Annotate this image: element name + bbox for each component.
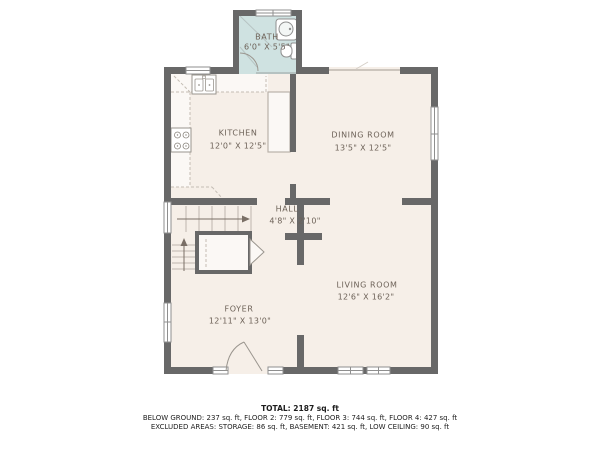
room-label-hall-dims: 4'8" X 2'10" — [269, 217, 320, 226]
stove-icon — [171, 128, 191, 152]
room-label-bath-dims: 6'0" X 5'5" — [244, 43, 290, 52]
room-label-bath-name: BATH — [255, 33, 279, 42]
room-label-hall-name: HALL — [276, 205, 299, 214]
closet — [197, 233, 250, 272]
room-label-kitchen-dims: 12'0" X 12'5" — [210, 142, 267, 151]
bath-sink-icon — [276, 19, 297, 40]
room-label-foyer-name: FOYER — [225, 305, 254, 314]
summary-total: TOTAL: 2187 sq. ft — [261, 404, 339, 413]
window-foyer-bottom-right — [268, 367, 283, 374]
summary-floor-areas: BELOW GROUND: 237 sq. ft, FLOOR 2: 779 s… — [143, 414, 457, 422]
room-label-dining-name: DINING ROOM — [331, 131, 394, 140]
window-kitchen-top — [186, 67, 210, 74]
room-label-living-name: LIVING ROOM — [336, 281, 397, 290]
window-living-bottom-right — [367, 367, 390, 374]
window-left-lower — [164, 303, 171, 342]
summary-excluded-areas: EXCLUDED AREAS: STORAGE: 86 sq. ft, BASE… — [151, 423, 449, 431]
window-living-bottom-left — [338, 367, 363, 374]
pantry-cabinet — [268, 92, 290, 152]
window-left-upper — [164, 202, 171, 233]
room-label-dining-dims: 13'5" X 12'5" — [335, 144, 392, 153]
room-label-living-dims: 12'6" X 16'2" — [338, 293, 395, 302]
floor-plan: BATH 6'0" X 5'5" KITCHEN 12'0" X 12'5" D… — [0, 0, 600, 450]
room-label-kitchen-name: KITCHEN — [219, 129, 258, 138]
room-label-foyer-dims: 12'11" X 13'0" — [209, 317, 271, 326]
window-dining-right — [431, 107, 438, 160]
kitchen-sink-icon — [192, 75, 216, 94]
window-bath-top — [256, 10, 291, 16]
